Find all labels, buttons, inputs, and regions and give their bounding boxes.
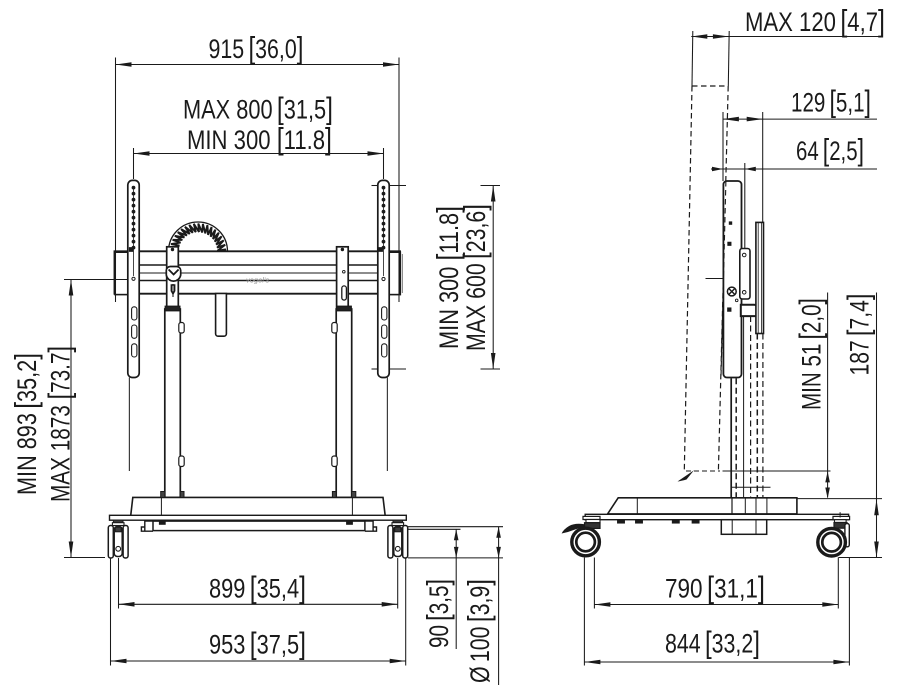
svg-text:MAX 1873 [73.7]: MAX 1873 [73.7] — [43, 346, 77, 502]
svg-text:MIN 893 [35,2]: MIN 893 [35,2] — [9, 353, 43, 495]
svg-text:Ø 100 [3,9]: Ø 100 [3,9] — [462, 579, 496, 683]
svg-text:953 [37,5]: 953 [37,5] — [209, 627, 306, 661]
svg-text:MAX 600 [23,6]: MAX 600 [23,6] — [458, 204, 492, 351]
svg-text:MAX 800 [31,5]: MAX 800 [31,5] — [183, 92, 333, 126]
svg-text:899 [35,4]: 899 [35,4] — [209, 571, 306, 605]
svg-text:187 [7,4]: 187 [7,4] — [842, 294, 876, 376]
svg-text:129 [5,1]: 129 [5,1] — [791, 85, 871, 119]
svg-text:915 [36,0]: 915 [36,0] — [209, 31, 304, 65]
svg-text:MIN 51 [2,0]: MIN 51 [2,0] — [794, 298, 828, 410]
svg-text:MIN 300 [11.8]: MIN 300 [11.8] — [187, 122, 332, 156]
svg-text:MIN 300 [11.8]: MIN 300 [11.8] — [431, 206, 465, 349]
svg-text:vogel’s: vogel’s — [246, 276, 269, 285]
svg-text:64 [2,5]: 64 [2,5] — [796, 133, 864, 167]
svg-text:90 [3,5]: 90 [3,5] — [421, 579, 455, 648]
svg-text:790 [31,1]: 790 [31,1] — [665, 571, 765, 605]
svg-text:MAX 120 [4,7]: MAX 120 [4,7] — [745, 4, 885, 38]
svg-text:844 [33,2]: 844 [33,2] — [665, 626, 760, 660]
